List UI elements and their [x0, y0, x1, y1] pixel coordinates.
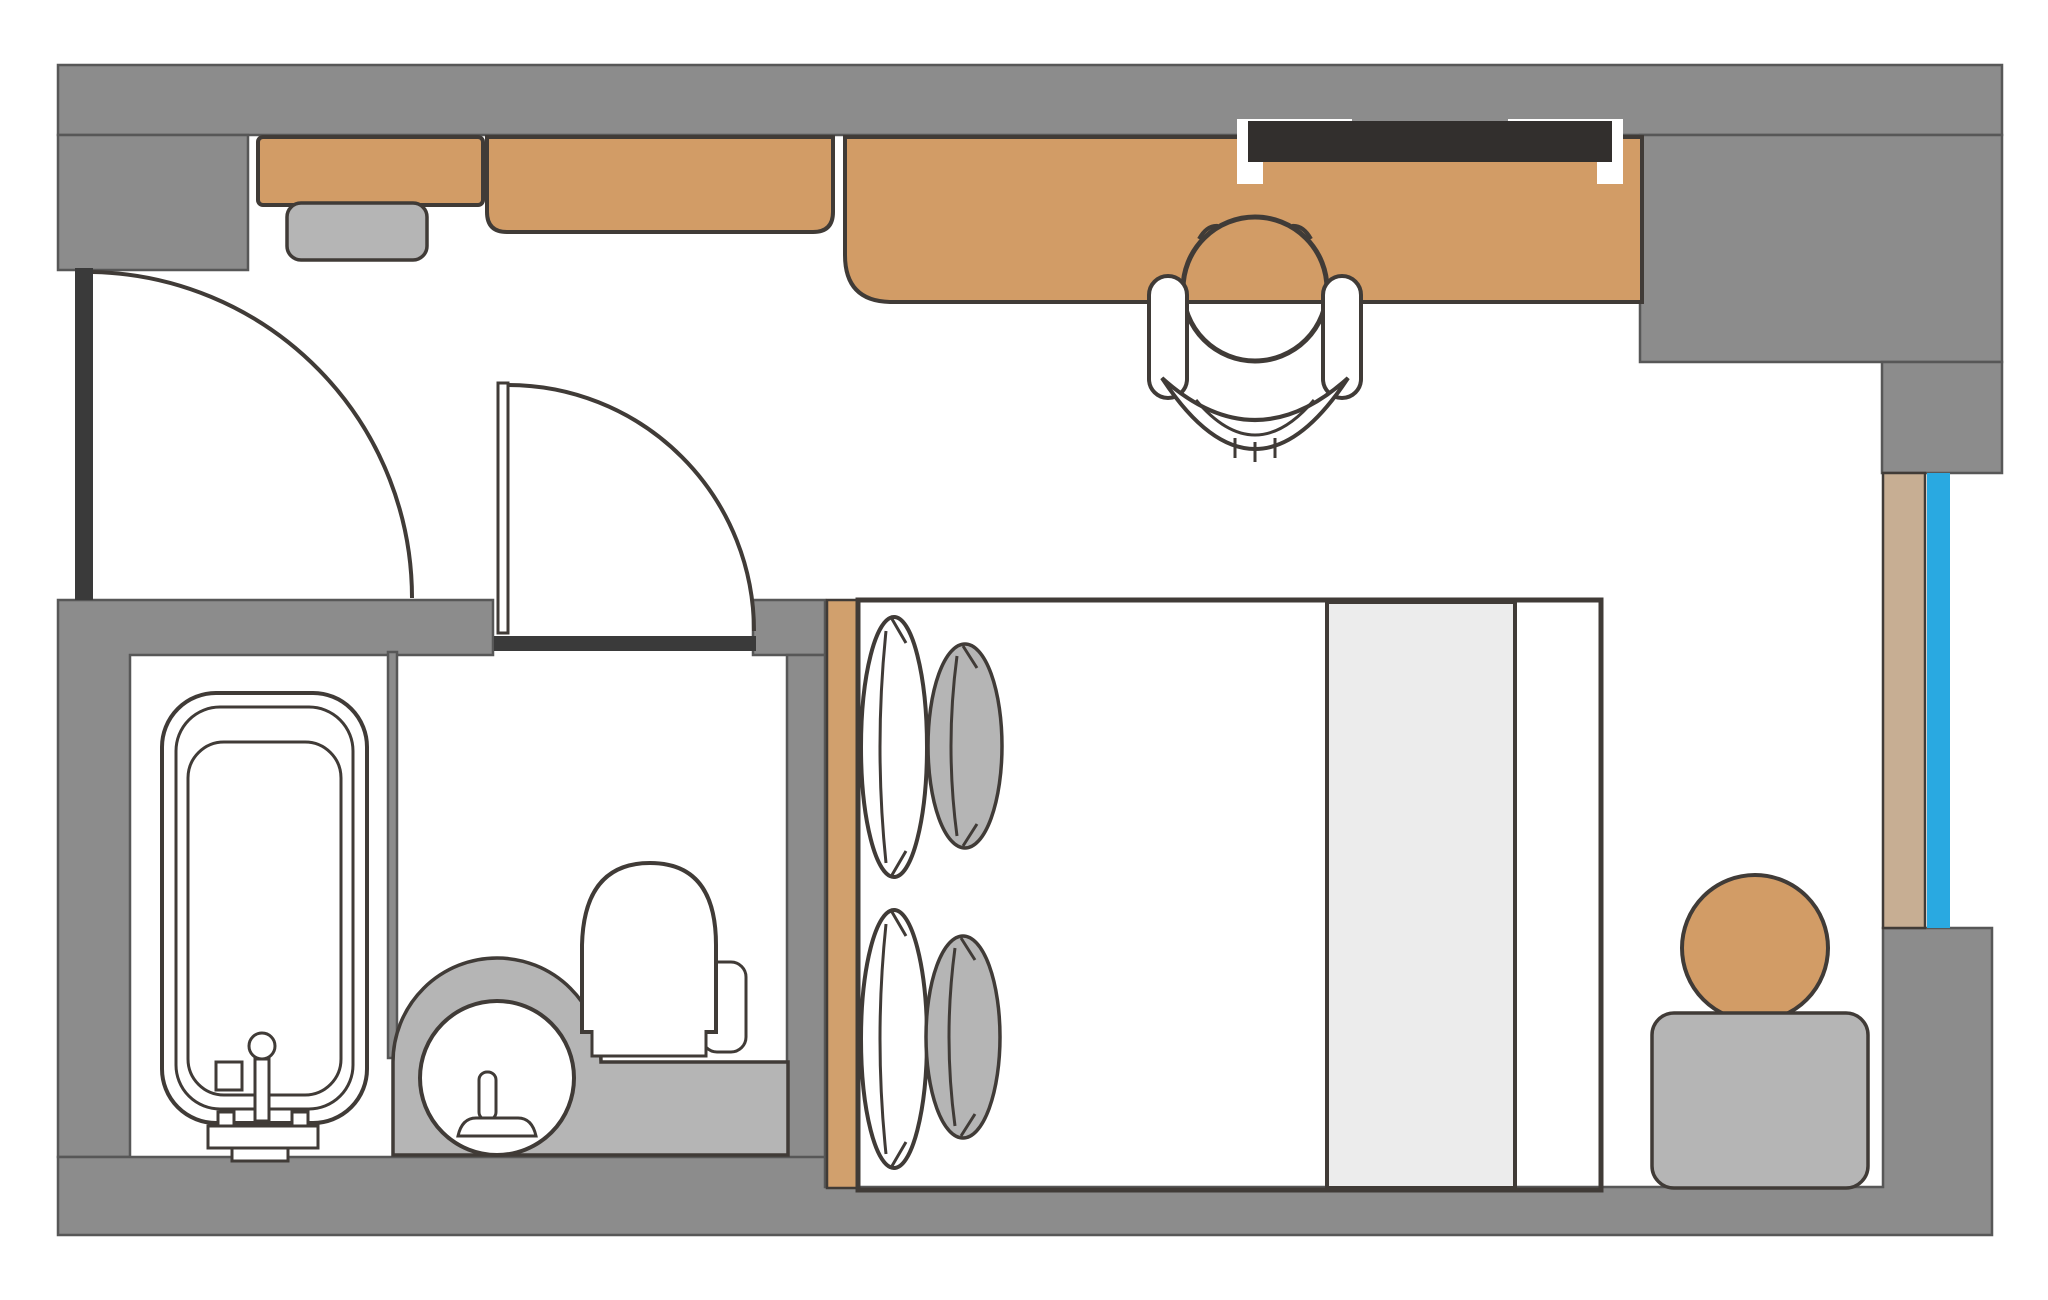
pillows: [861, 617, 1002, 1168]
washbasin: [420, 1001, 574, 1155]
stool: [1682, 875, 1828, 1021]
tv-screen: [1248, 121, 1612, 162]
bed-headboard: [827, 600, 858, 1188]
bathroom-door: [498, 383, 754, 633]
window-group: [1883, 473, 1950, 928]
pillow-gray-top: [928, 644, 1002, 848]
floor-plan-page: [0, 0, 2048, 1300]
wall-bathroom-top-right: [753, 600, 825, 655]
wall-bathroom-bedroom-divider: [787, 655, 825, 1187]
entry-door-leaf: [75, 268, 93, 600]
pillow-gray-bottom: [926, 936, 1000, 1138]
pillow-white-bottom: [861, 910, 927, 1168]
bath-faucet-foot: [232, 1148, 288, 1161]
bathroom-door-threshold: [494, 636, 756, 651]
window-sill: [1883, 473, 1925, 928]
bath-faucet-head: [249, 1033, 275, 1059]
bed-runner: [1327, 602, 1515, 1188]
luggage-rack: [287, 203, 427, 260]
bathroom-door-swing-arc: [508, 385, 754, 631]
bath-faucet-box: [216, 1062, 242, 1090]
entry-door-swing-arc: [93, 272, 412, 598]
wall-top: [58, 65, 2002, 135]
bathroom-door-leaf: [498, 383, 508, 633]
wall-right-upper-column: [1882, 362, 2002, 473]
toilet-bowl: [582, 863, 716, 1032]
desk-chair-seat: [1162, 378, 1348, 449]
toilet-base: [592, 1030, 706, 1056]
wall-top-right-block: [1640, 135, 2002, 362]
bath-faucet-crossbar: [208, 1126, 318, 1148]
entry-door: [75, 268, 412, 600]
bath-faucet-stem: [255, 1059, 269, 1121]
pillow-white-top: [861, 617, 927, 877]
wall-bathroom-inner-divider: [388, 652, 397, 1058]
wall-top-left-block: [58, 135, 248, 270]
desk-chair-armrest-left: [1149, 276, 1187, 398]
dresser: [487, 137, 833, 232]
washbasin-tap-base: [458, 1118, 536, 1136]
toilet: [582, 863, 746, 1056]
desk-chair-armrest-right: [1323, 276, 1361, 398]
bathtub: [162, 693, 367, 1161]
window-glass: [1927, 473, 1950, 928]
wardrobe: [258, 137, 483, 205]
washbasin-tap: [479, 1072, 496, 1120]
side-table: [1652, 1013, 1868, 1188]
hotel-room-floor-plan: [0, 0, 2048, 1300]
